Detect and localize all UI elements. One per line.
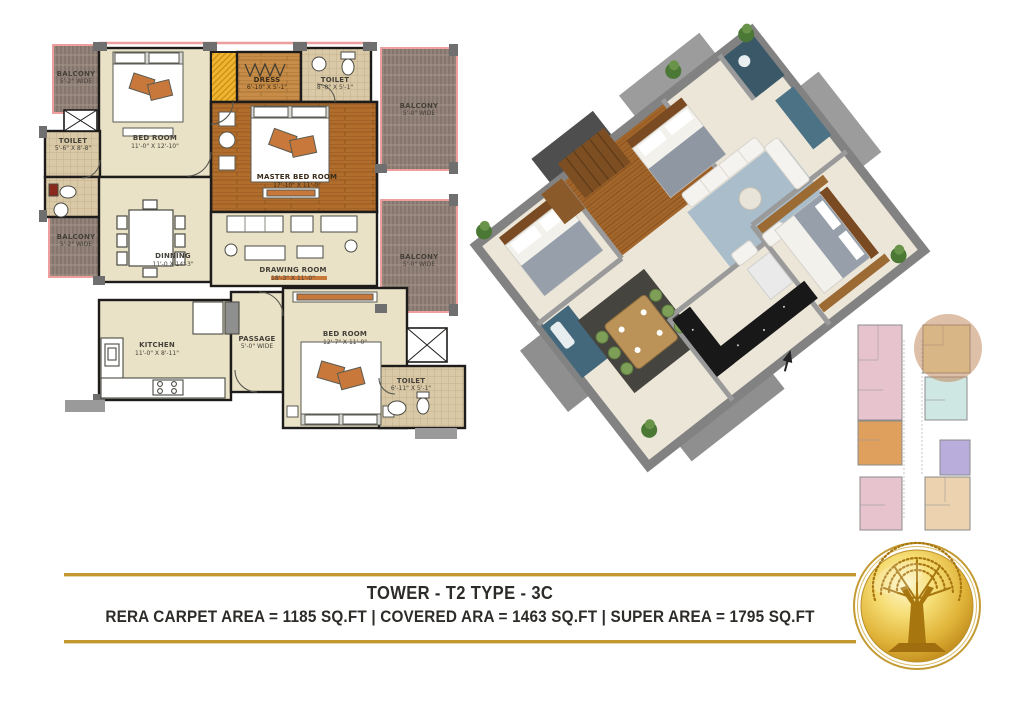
- svg-text:5'-2" WIDE: 5'-2" WIDE: [60, 241, 92, 248]
- gold-rule-bottom: [64, 640, 856, 643]
- svg-text:12'-7" X 11'-0": 12'-7" X 11'-0": [323, 339, 367, 346]
- lift-shaft: [407, 328, 447, 362]
- keyplan-unit-right: [940, 440, 970, 475]
- svg-text:5'-0" WIDE: 5'-0" WIDE: [241, 343, 273, 350]
- label-bedroom-2: BED ROOM: [323, 330, 367, 338]
- svg-text:6'-10" X 5'-1": 6'-10" X 5'-1": [247, 84, 287, 91]
- label-balcony-rt: BALCONY: [400, 102, 439, 110]
- plan-areas: RERA CARPET AREA = 1185 SQ.FT | COVERED …: [104, 604, 817, 630]
- label-bedroom-1: BED ROOM: [133, 134, 177, 142]
- label-balcony-tl: BALCONY: [57, 70, 96, 78]
- svg-text:5'-0" WIDE: 5'-0" WIDE: [403, 110, 435, 117]
- svg-text:18'-3" X 11'-0": 18'-3" X 11'-0": [271, 275, 315, 282]
- keyplan-unit-bottom-right: [925, 477, 970, 530]
- gold-rule-top: [64, 573, 856, 576]
- label-toilet-top: TOILET: [321, 76, 350, 84]
- label-dinning: DINNING: [155, 252, 191, 260]
- toilet-top-room: [301, 48, 371, 102]
- svg-text:6'-11" X 5'-1": 6'-11" X 5'-1": [391, 385, 431, 392]
- key-plan: [858, 314, 982, 530]
- svg-text:8'-8" X 5'-1": 8'-8" X 5'-1": [317, 84, 354, 91]
- label-kitchen: KITCHEN: [139, 341, 175, 349]
- keyplan-unit-mid-left: [858, 421, 902, 465]
- keyplan-unit-bottom-left: [860, 477, 902, 530]
- label-toilet-left: TOILET: [59, 137, 88, 145]
- shaft-top-left: [64, 110, 97, 131]
- brochure-page: BALCONY 5'-2" WIDE TOILET 5'-6" X 8'-8" …: [0, 0, 1024, 719]
- label-master-bedroom: MASTER BED ROOM: [257, 173, 337, 181]
- keyplan-highlight-circle: [914, 314, 982, 382]
- svg-text:11'-0" X 8'-11": 11'-0" X 8'-11": [135, 350, 179, 357]
- label-passage: PASSAGE: [238, 335, 275, 343]
- plan-title: TOWER - T2 TYPE - 3C: [96, 582, 825, 604]
- keyplan-unit-mid-right: [925, 377, 967, 420]
- label-toilet-br: TOILET: [397, 377, 426, 385]
- label-drawing-room: DRAWING ROOM: [259, 266, 326, 274]
- wardrobe-strip: [211, 52, 237, 102]
- svg-text:11'-0 X 14'-3": 11'-0 X 14'-3": [152, 261, 193, 268]
- svg-text:17'-10" X 11'-0": 17'-10" X 11'-0": [273, 182, 321, 189]
- svg-text:5'-6" X 8'-8": 5'-6" X 8'-8": [55, 145, 92, 152]
- svg-text:5'-2" WIDE: 5'-2" WIDE: [60, 78, 92, 85]
- svg-text:5'-0" WIDE: 5'-0" WIDE: [403, 261, 435, 268]
- tree-coin-logo-icon: [854, 543, 980, 669]
- label-dress: DRESS: [254, 76, 281, 84]
- label-balcony-bl: BALCONY: [57, 233, 96, 241]
- footer-title-block: TOWER - T2 TYPE - 3C RERA CARPET AREA = …: [64, 582, 856, 630]
- floorplan-2d: BALCONY 5'-2" WIDE TOILET 5'-6" X 8'-8" …: [39, 42, 465, 439]
- label-balcony-rb: BALCONY: [400, 253, 439, 261]
- keyplan-unit-top-left: [858, 325, 902, 420]
- svg-text:11'-0" X 12'-10": 11'-0" X 12'-10": [131, 143, 179, 150]
